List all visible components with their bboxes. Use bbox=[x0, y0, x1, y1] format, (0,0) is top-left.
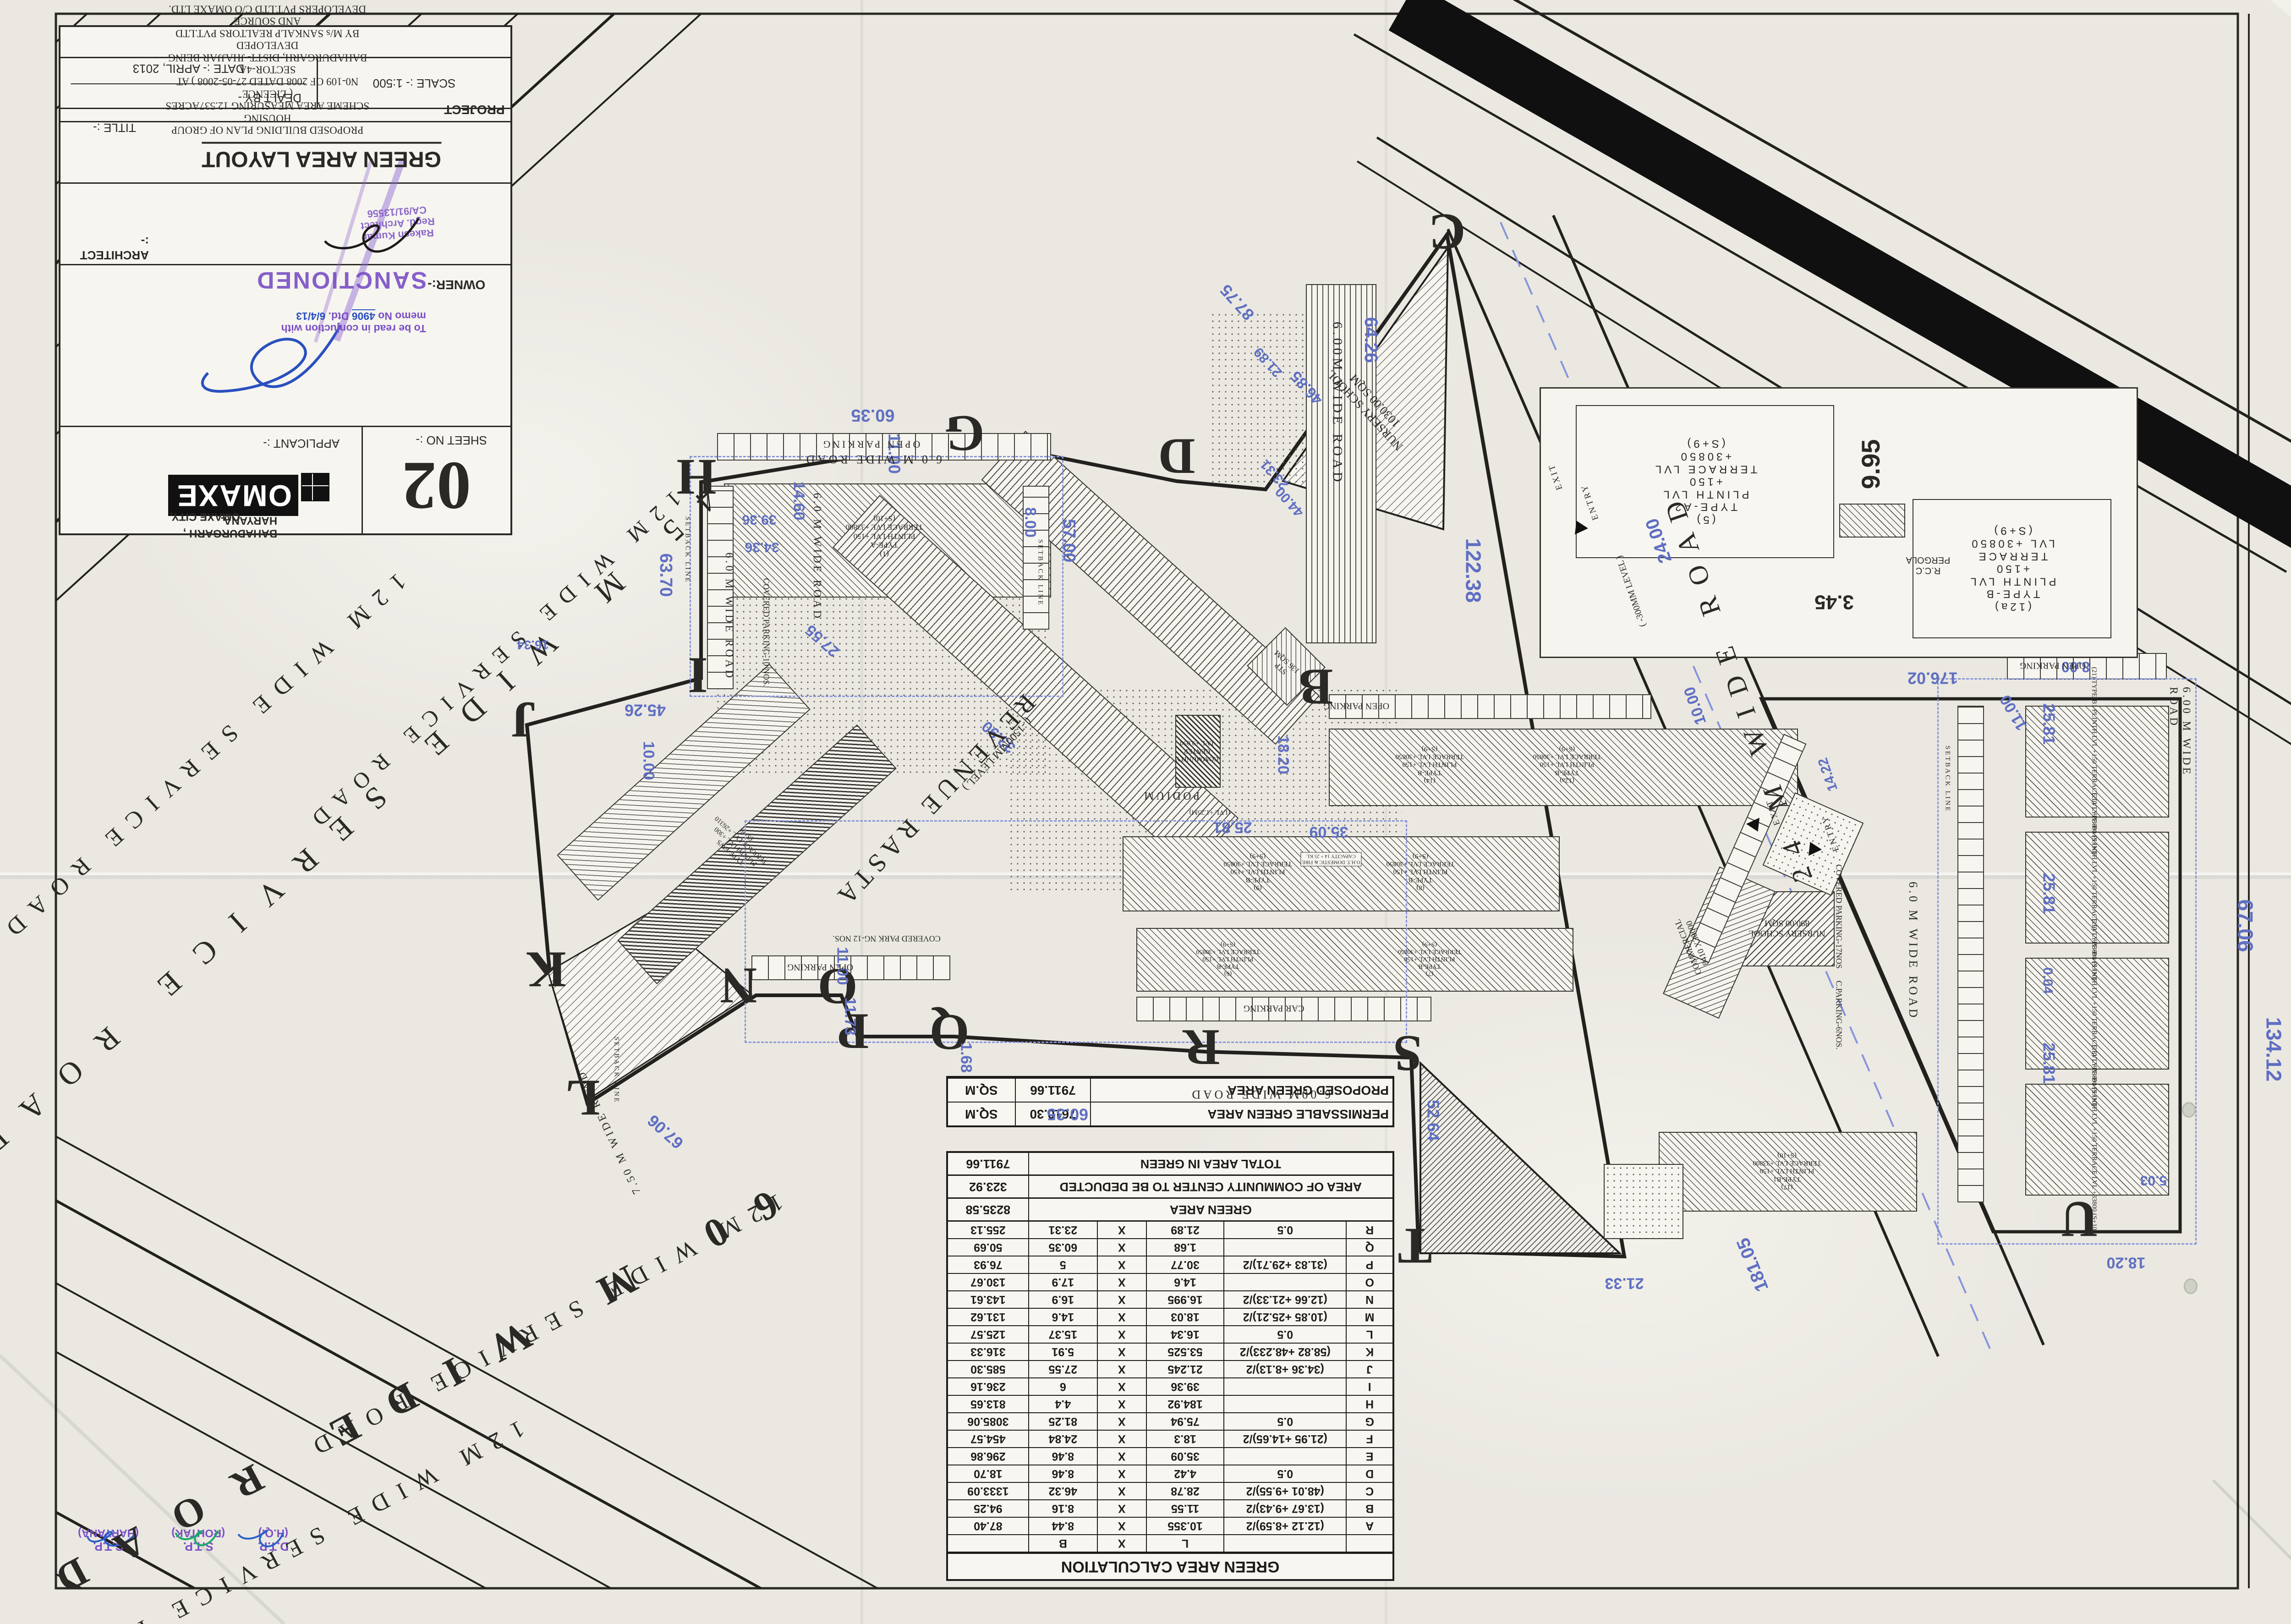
dim-label: 60.35 bbox=[851, 405, 894, 425]
dim-label: 67.06 bbox=[2233, 899, 2258, 952]
punch-hole bbox=[2182, 1102, 2196, 1118]
dim-label: 18.20 bbox=[2106, 1253, 2145, 1271]
boundary-letter: R bbox=[1183, 1018, 1220, 1077]
dim-label: 39.36 bbox=[742, 511, 776, 527]
table-row: A(12.12 +8.59)/210.355X8.4487.40 bbox=[948, 1518, 1392, 1535]
building-label-type-b12a: (12a) TYPE-B PLINTH LVL +150 TERRACE LVL… bbox=[1533, 745, 1601, 784]
car-parking-label: CAR PARKING bbox=[1243, 1003, 1304, 1014]
road-6m-label: 6.00M WIDE ROAD bbox=[1329, 322, 1345, 485]
dim-label: 14.60 bbox=[789, 481, 807, 520]
table-row: R0.521.89X23.31255.13 bbox=[948, 1222, 1392, 1239]
punch-hole bbox=[2184, 1278, 2198, 1294]
title-label: TITLE :- bbox=[93, 121, 136, 134]
table-row: H184.92X4.4813.65 bbox=[948, 1396, 1392, 1413]
memo-line2a: memo No bbox=[375, 310, 426, 322]
boundary-letter: K bbox=[526, 940, 566, 999]
drawing-title: GREEN AREA LAYOUT bbox=[202, 142, 441, 171]
table-row: C(48.01 +9.55)/228.78X46.321333.09 bbox=[948, 1483, 1392, 1500]
inset-dim-9-95: 9.95 bbox=[1856, 439, 1885, 489]
podium-level-label: (LVL +1.25M) bbox=[1189, 808, 1230, 816]
dim-label: 34.36 bbox=[745, 539, 779, 555]
building-label-type-b14: (14) TYPE-B PLINTH LVL +150 TERRACE LVL … bbox=[1395, 745, 1463, 784]
dim-label: 16.34 bbox=[517, 637, 549, 652]
sheet-number: 02 bbox=[402, 446, 471, 525]
memo-number: 4906 bbox=[352, 309, 375, 322]
scanned-site-plan-sheet: (12a) TYPE-B PLINTH LVL +150 TERRACE LVL… bbox=[0, 0, 2291, 1624]
architect-label: ARCHITECT :- bbox=[80, 234, 149, 262]
open-parking-label: OPEN PARKING bbox=[787, 962, 853, 972]
dim-label: 57.00 bbox=[1058, 519, 1079, 562]
table-summary: GREEN AREA 8235.58 AREA OF COMMUNITY CEN… bbox=[948, 1153, 1392, 1222]
open-parking-label: OPEN PARKING bbox=[2020, 660, 2086, 671]
dim-label: 25.81 bbox=[2039, 703, 2058, 745]
oht-tank-label: O.H.T. DOMESTIC & FIRE CAPACITY 14 + 25 … bbox=[1301, 852, 1362, 866]
setback-line-right-cluster bbox=[1937, 678, 2197, 1245]
table-title: GREEN AREA CALCULATION bbox=[948, 1553, 1392, 1579]
summary-row: GREEN AREA 8235.58 bbox=[948, 1199, 1392, 1222]
table-row: F(21.95 +14.65)/218.3X24.84454.57 bbox=[948, 1431, 1392, 1448]
dim-label: 45.26 bbox=[625, 701, 666, 719]
building-label-type-b17: (17) TYPE-B1 PLINTH LVL +150 TERRACE LVL… bbox=[1753, 1151, 1821, 1191]
podium-label: PODIUM bbox=[1142, 789, 1200, 801]
road-6m-label: 6.0 M WIDE ROAD bbox=[722, 553, 735, 680]
memo-line1: To be read in conjuction with bbox=[270, 322, 426, 335]
green-area-table: GREEN AREA CALCULATION LXB A(12.12 +8.59… bbox=[946, 1116, 1394, 1581]
table-row: Q1.68X60.3550.69 bbox=[948, 1239, 1392, 1256]
inset-pergola-label: R.C.C PERGOLA bbox=[1906, 554, 1951, 576]
covered-park-12-label: COVERED PARK NG-12 NOS. bbox=[833, 934, 940, 944]
table-row: N(12.66 +21.33)/216.995X16.9143.61 bbox=[948, 1291, 1392, 1309]
project-description: PROPOSED BUILDING PLAN OF GROUP HOUSING … bbox=[164, 3, 371, 136]
setback-line-label: SETBACK LINE bbox=[1943, 746, 1951, 812]
boundary-letter: N bbox=[720, 956, 757, 1015]
dim-label: 64.26 bbox=[1360, 317, 1381, 363]
dim-label: 10.00 bbox=[639, 741, 657, 780]
dim-label: 0.04 bbox=[2039, 967, 2055, 994]
nursery-school-2-label: NURSERY SCHOOL 890.00 SQM bbox=[1748, 918, 1825, 938]
capacity-row: PERMISSABLE GREEN AREA 7610.30 SQ.M bbox=[948, 1102, 1392, 1125]
boundary-letter: D bbox=[1158, 427, 1195, 486]
table-row: I39.36X6236.16 bbox=[948, 1378, 1392, 1396]
omaxe-place: BAHADURGARH , HARYANA. bbox=[133, 515, 277, 540]
summary-row: TOTAL AREA IN GREEN 7911.66 bbox=[948, 1153, 1392, 1176]
road-6m-label: 6.0 M WIDE ROAD bbox=[810, 493, 823, 621]
boundary-letter: I bbox=[688, 646, 708, 705]
applicant-label: APPLICANT :- bbox=[263, 436, 340, 450]
table-header-row: LXB bbox=[948, 1535, 1392, 1553]
dim-label: 63.70 bbox=[655, 553, 675, 597]
dim-label: 176.02 bbox=[1907, 669, 1958, 687]
dim-label: 21.33 bbox=[1605, 1274, 1644, 1292]
setback-line-label: SETBACK LINE bbox=[1036, 539, 1044, 606]
table-row: B(13.67 +9.43)/211.55X8.1694.25 bbox=[948, 1500, 1392, 1518]
c-parking-6-label: C.PARKING-6NOS. bbox=[1834, 981, 1844, 1049]
covered-parking-10-label: COVERED PARKING-10 NOS. bbox=[762, 578, 771, 687]
boundary-letter: T bbox=[1398, 1216, 1432, 1275]
boundary-letter: H bbox=[676, 447, 716, 506]
dim-label: 18.20 bbox=[1274, 735, 1292, 774]
memo-line2b: Dtd. bbox=[325, 310, 352, 322]
table-row: G0.575.94X81.253085.06 bbox=[948, 1413, 1392, 1431]
inset-type-a2-outline: (5) TYPE-A2 PLINTH LVL +150 TERRACE LVL … bbox=[1576, 405, 1834, 558]
setback-line-left-cluster bbox=[690, 456, 1063, 697]
boundary-letter: J bbox=[511, 690, 537, 749]
table-row: P(31.83 +29.71)/230.77X576.93 bbox=[948, 1256, 1392, 1274]
table-row: J(34.36 +8.13)/221.245X27.55585.30 bbox=[948, 1361, 1392, 1378]
table-row: K(58.82 +48.233)/253.525X5.91316.33 bbox=[948, 1344, 1392, 1361]
dim-label: 60.35 bbox=[1047, 1105, 1088, 1124]
dim-label: 1.68 bbox=[957, 1042, 975, 1073]
boundary-letter: G bbox=[944, 404, 984, 463]
building-label-type-b6: (6) TYPE-B PLINTH LVL +150 TERRACE LVL +… bbox=[1196, 940, 1260, 977]
dim-label: 25.81 bbox=[2039, 873, 2058, 914]
dim-label: 35.09 bbox=[1309, 823, 1348, 840]
boundary-letter: S bbox=[1393, 1024, 1422, 1083]
building-label-type-b1-18: (18) TYPE-B1 PLINTH LVL +150 TERRACE LVL… bbox=[2090, 1045, 2098, 1232]
setback-line-label: SETBACK LINE bbox=[612, 1037, 620, 1103]
table-row: L0.516.34X15.37125.57 bbox=[948, 1326, 1392, 1344]
dim-label: 25.81 bbox=[1213, 818, 1252, 836]
project-label: PROJECT bbox=[444, 102, 504, 117]
building-label-type-b7: (7) TYPE-B PLINTH LVL +150 TERRACE LVL +… bbox=[1398, 940, 1461, 977]
omaxe-logo-mark bbox=[301, 473, 329, 501]
road-6m-label: 6.0 M WIDE ROAD bbox=[804, 452, 942, 466]
dim-label: 25.81 bbox=[2039, 1042, 2058, 1084]
road-6m-label: 6.0 M WIDE ROAD bbox=[1906, 882, 1920, 1020]
inset-type-b-label: (12a) TYPE-B PLINTH LVL +150 TERRACE LVL… bbox=[1963, 524, 2061, 613]
omaxe-logo: OMAXE bbox=[168, 473, 329, 516]
table-row: D0.54.42X8.4618.70 bbox=[948, 1465, 1392, 1483]
memo-date: 6/4/13 bbox=[296, 310, 325, 322]
building-label-type-b8: (8) TYPE-B PLINTH LVL +150 TERRACE LVL +… bbox=[1386, 852, 1454, 891]
table-body: A(12.12 +8.59)/210.355X8.4487.40 B(13.67… bbox=[948, 1222, 1392, 1535]
table-row: O14.6X17.9130.67 bbox=[948, 1274, 1392, 1291]
road-6m-label: 6.00 M WIDE ROAD bbox=[2167, 687, 2192, 816]
green-area-capacity-table: PERMISSABLE GREEN AREA 7610.30 SQ.M PROP… bbox=[946, 1076, 1394, 1127]
community-center-label: COMMUNITY CENTER LVL +9.050 bbox=[1175, 739, 1218, 763]
road-6m-label: 6.00M WIDE ROAD bbox=[1189, 1087, 1331, 1101]
dim-label: 5.03 bbox=[2140, 1172, 2167, 1188]
dim-label: 11.73 bbox=[841, 997, 859, 1035]
covered-parking-17-label: COVERED PARKING-17NOS bbox=[1834, 864, 1844, 969]
open-parking-label: OPEN PARKING bbox=[821, 439, 921, 450]
table-row: E35.09X8.46296.86 bbox=[948, 1448, 1392, 1465]
green-area-calculation-table: GREEN AREA CALCULATION LXB A(12.12 +8.59… bbox=[946, 1151, 1394, 1581]
inset-pergola bbox=[1839, 504, 1905, 538]
boundary-letter: C bbox=[1429, 202, 1466, 261]
dim-label: 52.64 bbox=[1424, 1100, 1442, 1141]
setback-line-label: SETBACK LINE bbox=[683, 516, 691, 583]
open-parking-label: OPEN PARKING bbox=[1323, 701, 1389, 711]
architect-signature bbox=[313, 204, 433, 269]
table-row: M(10.85 +25.21)/218.03X14.6131.62 bbox=[948, 1309, 1392, 1326]
sanctioned-stamp: SANCTIONED bbox=[256, 266, 427, 293]
summary-row: AREA OF COMMUNITY CENTER TO BE DEDUCTED … bbox=[948, 1176, 1392, 1199]
dim-label: 122.38 bbox=[1461, 538, 1485, 603]
dim-label: 134.12 bbox=[2262, 1017, 2286, 1082]
building-label-type-b9: (9) TYPE-B PLINTH LVL +150 TERRACE LVL +… bbox=[1223, 852, 1292, 891]
inset-dim-3-45: 3.45 bbox=[1814, 590, 1854, 614]
water-tank-area-2 bbox=[1604, 1164, 1683, 1239]
dim-label: 8.00 bbox=[1021, 507, 1039, 538]
sheet-no-label: SHEET NO :- bbox=[416, 433, 487, 447]
memo-note: To be read in conjuction with memo No 49… bbox=[270, 293, 426, 335]
owner-label: OWNER:- bbox=[428, 277, 485, 292]
inset-detail-box: (12a) TYPE-B PLINTH LVL +150 TERRACE LVL… bbox=[1540, 387, 2138, 658]
building-label-type-a: (1) TYPE-A PLINTH LVL +150 TERRACE LVL +… bbox=[846, 514, 923, 559]
